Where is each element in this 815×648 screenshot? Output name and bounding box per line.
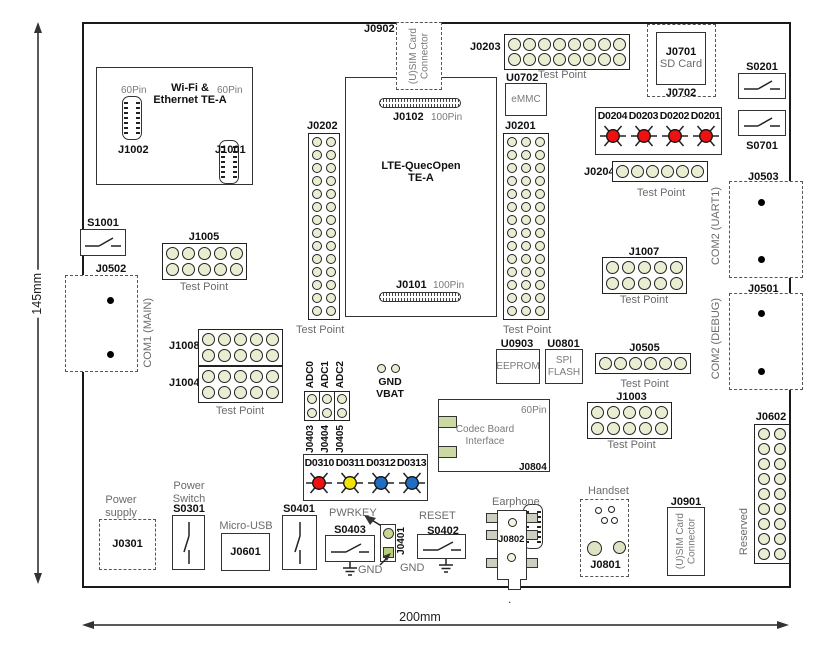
earphone-label: Earphone	[492, 496, 540, 509]
led-item: D0311	[335, 458, 366, 496]
testpoint-dot	[654, 277, 667, 290]
testpoint-dot	[758, 428, 770, 440]
lte-module-title: LTE-QuecOpen TE-A	[361, 160, 481, 184]
emmc-chip: eMMC	[505, 83, 547, 116]
testpoint-dot	[202, 386, 215, 399]
handset-hole-icon	[611, 517, 618, 524]
testpoint-dot	[218, 386, 231, 399]
testpoint-dot	[326, 189, 336, 199]
testpoint-dot	[202, 370, 215, 383]
testpoint-dot	[774, 548, 786, 560]
label-j0405: J0405	[335, 425, 346, 453]
testpoint-dot	[535, 267, 545, 277]
testpoint-dot	[521, 163, 531, 173]
testpoint-dot	[583, 53, 596, 66]
label-j1005: J1005	[162, 231, 246, 243]
testpoint-dot	[507, 163, 517, 173]
testpoint-dot	[326, 254, 336, 264]
testpoint-dot	[521, 228, 531, 238]
com2-debug-box	[729, 293, 803, 390]
label-s1001: S1001	[80, 217, 126, 229]
testpoint-dot	[326, 137, 336, 147]
com2-uart1-pin-dot	[758, 199, 765, 206]
testpoint-dot	[198, 263, 211, 276]
gnd-testpoint-dot	[377, 364, 386, 373]
testpoint-dot	[326, 306, 336, 316]
label-s0701: S0701	[738, 140, 786, 152]
caption-j1003: Test Point	[587, 439, 676, 452]
testpoint-dot	[250, 370, 263, 383]
testpoint-dot	[507, 202, 517, 212]
led-item: D0313	[396, 458, 427, 496]
testpoint-dot	[583, 38, 596, 51]
testpoint-dot	[326, 176, 336, 186]
testpoint-dot	[521, 202, 531, 212]
height-dimension-label: 145mm	[30, 270, 44, 318]
testpoint-dot	[312, 241, 322, 251]
testpoint-dot	[774, 518, 786, 530]
earphone-pin-icon	[486, 558, 498, 568]
micro-usb-connector-j0601: J0601	[221, 533, 270, 571]
led-icon	[662, 123, 688, 149]
testpoint-dot	[655, 422, 668, 435]
testpoint-dot	[607, 422, 620, 435]
testpoint-dot	[312, 228, 322, 238]
label-j0102: J0102	[393, 111, 424, 123]
switch-s1001-icon	[80, 229, 126, 256]
sim-connector-top-label: (U)SIM Card Connector	[408, 28, 431, 84]
testpoint-dot	[507, 228, 517, 238]
gnd-vbat-label: GND VBAT	[363, 376, 417, 400]
led-icon	[693, 123, 719, 149]
testpoint-dot	[521, 150, 531, 160]
testpoint-dot	[535, 202, 545, 212]
testpoint-dot	[535, 163, 545, 173]
codec-tab-icon	[438, 446, 457, 458]
width-dimension-label: 200mm	[389, 610, 451, 624]
led-item: D0201	[690, 111, 721, 149]
com2-debug-pin-dot	[758, 368, 765, 375]
testpoint-dot	[326, 163, 336, 173]
handset-hole-icon	[601, 517, 608, 524]
handset-hole-icon	[608, 506, 615, 513]
com2-debug-label: COM2 (DEBUG)	[710, 298, 723, 379]
earphone-pin-icon	[486, 530, 498, 540]
testpoint-dot	[591, 406, 604, 419]
led-item: D0312	[366, 458, 397, 496]
testpoint-dot	[638, 261, 651, 274]
testpoint-dot	[326, 202, 336, 212]
com2-uart1-box	[729, 181, 803, 278]
label-j1004: J1004	[169, 377, 200, 389]
testpoint-dot	[507, 215, 517, 225]
switch-s0403-icon	[325, 535, 375, 562]
connector-j0101-icon	[379, 292, 461, 302]
label-s0401: S0401	[280, 503, 318, 515]
sd-card-box: J0701 SD Card	[656, 32, 706, 85]
testpoint-dot	[599, 357, 612, 370]
testpoint-dot	[250, 349, 263, 362]
testpoint-dot	[758, 488, 770, 500]
testpoint-dot	[553, 53, 566, 66]
label-s0301: S0301	[170, 503, 208, 515]
testpoint-dot	[644, 357, 657, 370]
switch-s0402-icon	[417, 534, 466, 559]
testpoint-dot	[535, 306, 545, 316]
testpoint-dot	[234, 386, 247, 399]
testpoint-dot	[326, 150, 336, 160]
testpoint-dot	[655, 406, 668, 419]
testpoint-dot	[507, 176, 517, 186]
testpoint-dot	[234, 333, 247, 346]
testpoint-dot	[659, 357, 672, 370]
handset-box-j0801: J0801	[580, 499, 629, 577]
led-item: D0203	[628, 111, 659, 149]
testpoint-dot	[535, 137, 545, 147]
testpoint-dot	[250, 386, 263, 399]
testpoint-dot	[670, 261, 683, 274]
spi-flash-chip: SPI FLASH	[545, 349, 583, 384]
label-j0401: J0401	[396, 527, 407, 555]
testpoint-dot	[614, 357, 627, 370]
vbat-testpoint-dot	[391, 364, 400, 373]
led-icon	[631, 123, 657, 149]
label-j0403: J0403	[305, 425, 316, 453]
led-icon	[337, 470, 363, 496]
label-j0101: J0101	[396, 279, 427, 291]
testpoint-dot	[507, 241, 517, 251]
testpoint-dot	[774, 488, 786, 500]
testpoint-dot	[758, 518, 770, 530]
caption-j0201: Test Point	[503, 324, 551, 337]
testpoint-dot	[535, 176, 545, 186]
led-bank-bottom: D0310D0311D0312D0313	[304, 458, 427, 496]
label-j0702: J0702	[656, 87, 706, 99]
led-label: D0201	[691, 111, 720, 122]
testpoint-dot	[312, 163, 322, 173]
testpoint-dot	[654, 261, 667, 274]
testpoint-dot	[326, 241, 336, 251]
pincount-j0101: 100Pin	[433, 280, 464, 292]
wifi-right-pincount: 60Pin	[217, 85, 243, 97]
reset-label: RESET	[419, 510, 456, 523]
label-j0802: J0802	[498, 535, 524, 545]
testpoint-dot	[322, 408, 332, 418]
sim-connector-bottom-label: (U)SIM Card Connector	[675, 513, 698, 569]
eeprom-chip: EEPROM	[496, 349, 540, 384]
testpoint-dot	[639, 406, 652, 419]
testpoint-grid-j0505	[595, 353, 691, 374]
testpoint-dot	[591, 422, 604, 435]
micro-usb-label: Micro-USB	[219, 520, 273, 533]
wifi-connector-j1002-icon	[122, 96, 142, 140]
label-adc2: ADC2	[335, 361, 346, 388]
testpoint-dot	[507, 306, 517, 316]
testpoint-dot	[230, 247, 243, 260]
label-j0202: J0202	[307, 120, 338, 132]
sd-card-label: SD Card	[660, 58, 702, 71]
testpoint-dot	[521, 293, 531, 303]
power-supply-connector-j0301: J0301	[99, 519, 156, 570]
testpoint-dot	[758, 473, 770, 485]
testpoint-dot	[758, 503, 770, 515]
testpoint-dot	[676, 165, 689, 178]
ground-symbol-icon	[341, 562, 359, 577]
com1-pin-dot	[107, 297, 114, 304]
testpoint-dot	[661, 165, 674, 178]
label-j0203: J0203	[470, 41, 501, 53]
testpoint-dot	[606, 261, 619, 274]
testpoint-dot	[166, 263, 179, 276]
testpoint-dot	[691, 165, 704, 178]
testpoint-dot	[670, 277, 683, 290]
adc-jumper-j0405	[334, 391, 350, 421]
switch-s0201-icon	[738, 73, 786, 99]
testpoint-dot	[326, 280, 336, 290]
label-j0902: J0902	[364, 23, 395, 35]
switch-s0401-icon	[282, 515, 317, 570]
adc-jumper-j0403	[304, 391, 320, 421]
testpoint-dot	[507, 137, 517, 147]
sim-connector-top-box: (U)SIM Card Connector	[396, 22, 442, 90]
com1-pin-dot	[107, 351, 114, 358]
testpoint-dot	[266, 386, 279, 399]
testpoint-dot	[507, 267, 517, 277]
earphone-pin-icon	[486, 513, 498, 523]
testpoint-grid-j1003	[587, 402, 672, 439]
testpoint-dot	[507, 150, 517, 160]
testpoint-dot	[312, 150, 322, 160]
testpoint-dot	[774, 428, 786, 440]
connector-j0102-icon	[379, 98, 461, 108]
label-j0204: J0204	[584, 166, 615, 178]
testpoint-dot	[326, 215, 336, 225]
com2-uart1-label: COM2 (UART1)	[710, 187, 723, 265]
testpoint-dot	[613, 53, 626, 66]
label-j0201: J0201	[505, 120, 536, 132]
testpoint-dot	[312, 306, 322, 316]
testpoint-dot	[535, 241, 545, 251]
pincount-j0102: 100Pin	[431, 112, 462, 124]
adc-jumper-j0404	[319, 391, 335, 421]
testpoint-dot	[538, 38, 551, 51]
testpoint-dot	[312, 267, 322, 277]
testpoint-dot	[535, 293, 545, 303]
testpoint-dot	[322, 394, 332, 404]
testpoint-dot	[312, 280, 322, 290]
led-label: D0310	[305, 458, 334, 469]
earphone-jack-j0802: J0802	[486, 509, 538, 595]
label-adc0: ADC0	[305, 361, 316, 388]
testpoint-dot	[166, 247, 179, 260]
led-item: D0204	[597, 111, 628, 149]
testpoint-dot	[521, 215, 531, 225]
label-j0801: J0801	[581, 559, 630, 571]
led-label: D0202	[660, 111, 689, 122]
testpoint-grid-j1008	[198, 329, 283, 366]
testpoint-dot	[214, 247, 227, 260]
testpoint-dot	[639, 422, 652, 435]
testpoint-dot	[535, 215, 545, 225]
led-label: D0204	[598, 111, 627, 122]
com1-main-label: COM1 (MAIN)	[142, 298, 155, 368]
led-bank-top: D0204D0203D0202D0201	[597, 111, 721, 149]
reserved-grid-j0602	[754, 424, 790, 564]
switch-s0701-icon	[738, 110, 786, 136]
testpoint-dot	[266, 349, 279, 362]
testpoint-dot	[326, 228, 336, 238]
reserved-label: Reserved	[738, 508, 751, 555]
testpoint-dot	[521, 267, 531, 277]
testpoint-dot	[312, 215, 322, 225]
testpoint-dot	[758, 443, 770, 455]
testpoint-dot	[508, 38, 521, 51]
testpoint-dot	[507, 293, 517, 303]
testpoint-dot	[312, 293, 322, 303]
earphone-pin-icon	[526, 558, 538, 568]
testpoint-dot	[538, 53, 551, 66]
label-s0201: S0201	[738, 61, 786, 73]
power-supply-label: Power supply	[98, 494, 144, 519]
testpoint-dot	[535, 254, 545, 264]
testpoint-dot	[535, 150, 545, 160]
testpoint-dot	[312, 137, 322, 147]
testpoint-dot	[523, 38, 536, 51]
testpoint-dot	[507, 254, 517, 264]
label-j0804: J0804	[519, 462, 547, 473]
testpoint-dot	[230, 263, 243, 276]
pwrkey-pin-icon	[383, 528, 394, 539]
led-icon	[306, 470, 332, 496]
label-j0701: J0701	[666, 46, 697, 58]
testpoint-dot	[598, 38, 611, 51]
testpoint-dot	[623, 422, 636, 435]
led-icon	[600, 123, 626, 149]
testpoint-dot	[553, 38, 566, 51]
power-switch-label: Power Switch	[170, 480, 208, 505]
caption-j1004: Test Point	[198, 405, 282, 418]
testpoint-dot	[568, 53, 581, 66]
testpoint-dot	[521, 189, 531, 199]
testpoint-grid-j1005	[162, 243, 247, 280]
com2-uart1-pin-dot	[758, 256, 765, 263]
testpoint-grid-j1004	[198, 366, 283, 403]
testpoint-dot	[638, 277, 651, 290]
com2-debug-pin-dot	[758, 310, 765, 317]
testpoint-dot	[774, 458, 786, 470]
led-label: D0203	[629, 111, 658, 122]
switch-s0301-icon	[172, 515, 205, 570]
caption-j0505: Test Point	[595, 378, 694, 391]
sim-connector-bottom-box: (U)SIM Card Connector	[667, 507, 705, 576]
gnd-arrow-icon	[376, 551, 394, 567]
earphone-notch-icon	[508, 579, 521, 590]
testpoint-dot	[218, 333, 231, 346]
testpoint-dot	[622, 277, 635, 290]
testpoint-grid-j1007	[602, 257, 687, 294]
testpoint-dot	[774, 443, 786, 455]
label-j1008: J1008	[169, 340, 200, 352]
label-j0602: J0602	[753, 411, 789, 423]
testpoint-dot	[507, 280, 517, 290]
testpoint-dot	[607, 406, 620, 419]
testpoint-dot	[631, 165, 644, 178]
testpoint-dot	[622, 261, 635, 274]
testpoint-dot	[266, 370, 279, 383]
testpoint-dot	[337, 408, 347, 418]
testpoint-dot	[234, 370, 247, 383]
testpoint-dot	[606, 277, 619, 290]
testpoint-dot	[218, 349, 231, 362]
earphone-hole-icon	[508, 518, 517, 527]
caption-j0203: Test Point	[538, 69, 586, 82]
testpoint-dot	[523, 53, 536, 66]
testpoint-dot	[646, 165, 659, 178]
led-label: D0312	[366, 458, 395, 469]
testpoint-dot	[521, 241, 531, 251]
led-icon	[368, 470, 394, 496]
led-icon	[399, 470, 425, 496]
testpoint-dot	[307, 408, 317, 418]
testpoint-dot	[774, 533, 786, 545]
testpoint-dot	[266, 333, 279, 346]
testpoint-dot	[312, 202, 322, 212]
handset-hole-icon	[595, 507, 602, 514]
testpoint-grid-j0202	[308, 133, 340, 320]
testpoint-dot	[568, 38, 581, 51]
earphone-hole-icon	[507, 553, 516, 562]
ground-symbol-icon	[437, 559, 455, 574]
testpoint-dot	[312, 189, 322, 199]
reset-gnd-label: GND	[400, 562, 424, 575]
label-j1002: J1002	[118, 144, 149, 156]
testpoint-dot	[312, 176, 322, 186]
testpoint-dot	[758, 548, 770, 560]
handset-pad-icon	[613, 541, 626, 554]
testpoint-dot	[629, 357, 642, 370]
testpoint-dot	[521, 176, 531, 186]
testpoint-grid-j0203	[504, 34, 630, 70]
caption-j0202: Test Point	[296, 324, 344, 337]
testpoint-dot	[326, 267, 336, 277]
label-j0404: J0404	[320, 425, 331, 453]
testpoint-dot	[674, 357, 687, 370]
led-label: D0313	[397, 458, 426, 469]
caption-j0204: Test Point	[628, 187, 694, 200]
testpoint-dot	[214, 263, 227, 276]
testpoint-grid-j0201	[503, 133, 549, 320]
testpoint-dot	[507, 189, 517, 199]
testpoint-dot	[337, 394, 347, 404]
testpoint-dot	[521, 254, 531, 264]
testpoint-dot	[774, 503, 786, 515]
testpoint-dot	[758, 458, 770, 470]
led-item: D0310	[304, 458, 335, 496]
testpoint-dot	[182, 263, 195, 276]
label-adc1: ADC1	[320, 361, 331, 388]
label-j0502: J0502	[88, 263, 134, 275]
board-diagram: 145mm 200mm . Wi-Fi & Ethernet TE-A 60Pi…	[0, 0, 815, 648]
testpoint-dot	[250, 333, 263, 346]
testpoint-dot	[508, 53, 521, 66]
testpoint-dot	[598, 53, 611, 66]
testpoint-dot	[198, 247, 211, 260]
testpoint-dot	[202, 349, 215, 362]
caption-j1007: Test Point	[602, 294, 686, 307]
testpoint-dot	[326, 293, 336, 303]
testpoint-dot	[774, 473, 786, 485]
testpoint-dot	[218, 370, 231, 383]
